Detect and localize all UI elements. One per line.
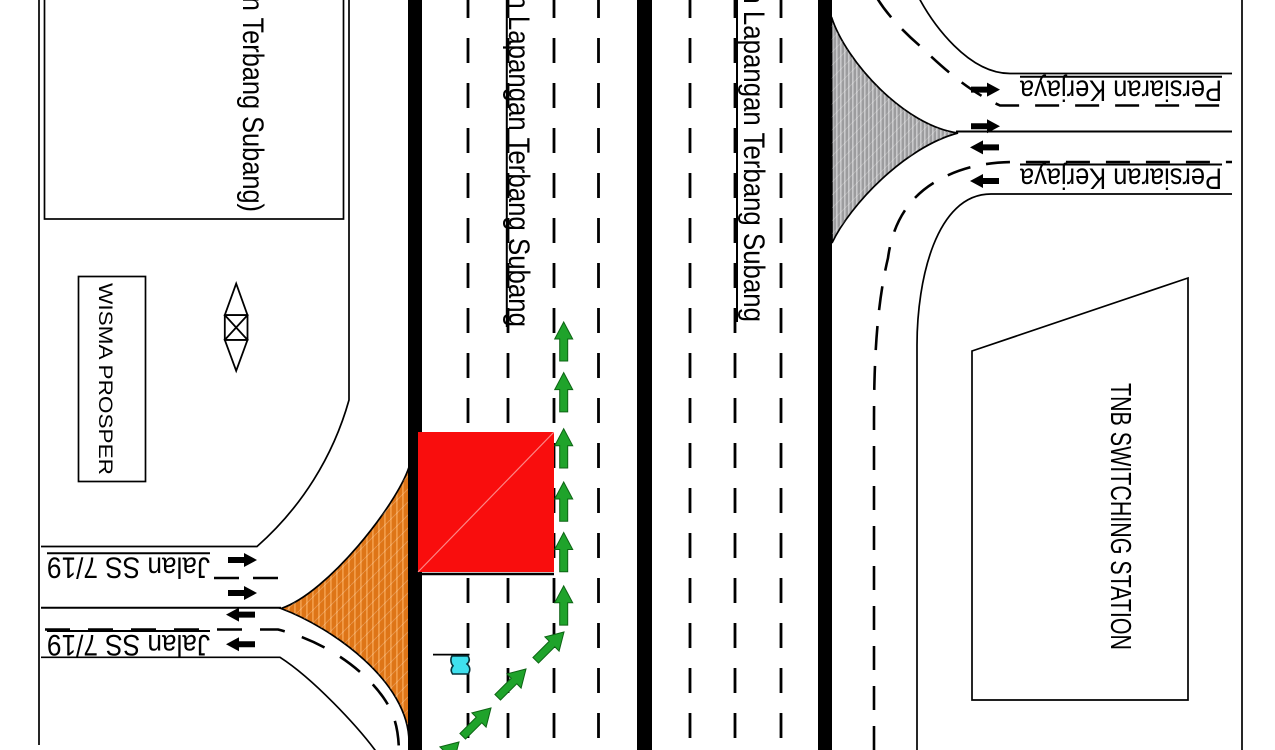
svg-text:(Jalan Lapangan Terbang Subang: (Jalan Lapangan Terbang Subang) [236,0,269,212]
svg-text:Jalan SS 7/19: Jalan SS 7/19 [47,628,210,661]
svg-text:TNB SWITCHING STATION: TNB SWITCHING STATION [1104,383,1136,650]
svg-text:Jalan Lapangan Terbang Subang: Jalan Lapangan Terbang Subang [737,0,770,322]
svg-text:Persiaran Kerjaya: Persiaran Kerjaya [1020,74,1222,107]
svg-text:Jalan Lapangan Terbang Subang: Jalan Lapangan Terbang Subang [502,0,535,327]
svg-text:Persiaran Kerjaya: Persiaran Kerjaya [1020,162,1222,195]
svg-text:Jalan SS 7/19: Jalan SS 7/19 [47,550,210,583]
svg-text:WISMA PROSPER: WISMA PROSPER [94,283,115,475]
